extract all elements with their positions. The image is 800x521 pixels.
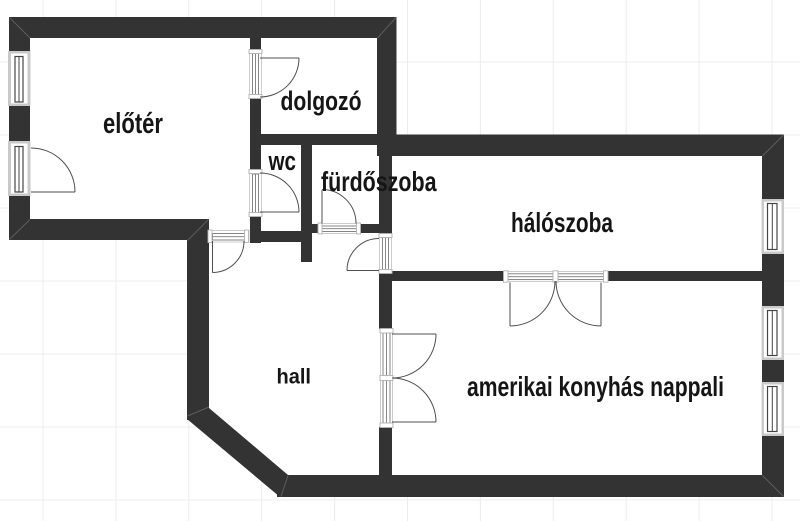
svg-text:hall: hall xyxy=(277,365,312,388)
svg-text:előtér: előtér xyxy=(103,108,163,140)
svg-text:wc: wc xyxy=(268,146,296,176)
svg-text:amerikai konyhás nappali: amerikai konyhás nappali xyxy=(467,371,724,402)
svg-text:hálószoba: hálószoba xyxy=(511,207,613,238)
svg-text:fürdőszoba: fürdőszoba xyxy=(321,166,437,197)
svg-text:dolgozó: dolgozó xyxy=(281,86,362,116)
